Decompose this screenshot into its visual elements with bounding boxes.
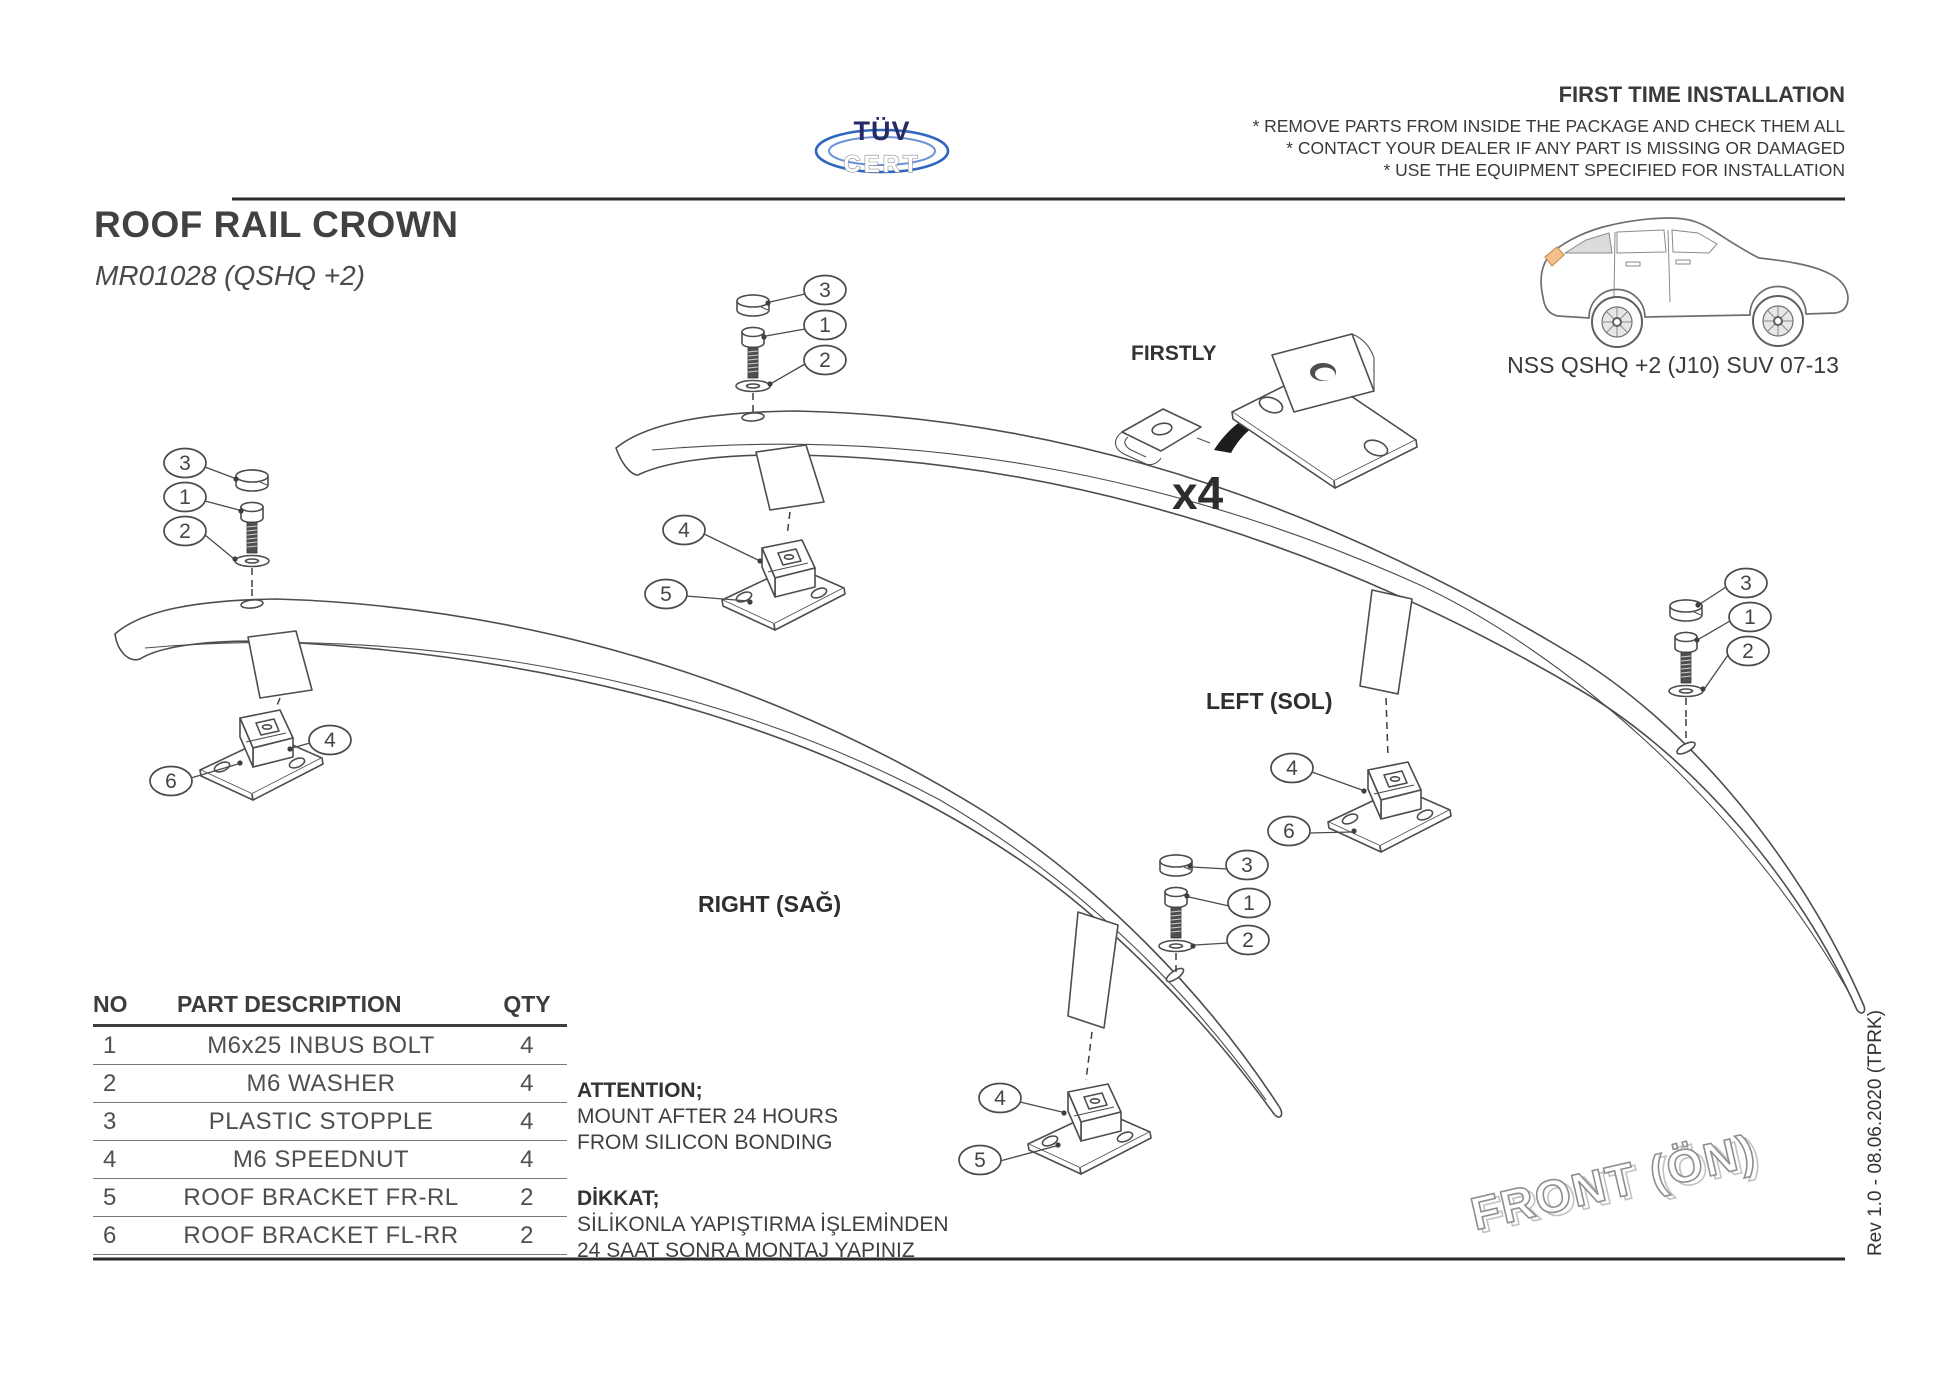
rail-left-rear-leg bbox=[1360, 590, 1412, 694]
attention-line: MOUNT AFTER 24 HOURS bbox=[577, 1104, 949, 1130]
callouts-left-rear-bracket: 4 6 bbox=[1268, 754, 1367, 846]
col-header-description: PART DESCRIPTION bbox=[155, 991, 487, 1018]
installation-sheet: 3 1 2 3 1 2 3 1 bbox=[0, 0, 1946, 1376]
svg-text:3: 3 bbox=[1241, 854, 1253, 877]
svg-text:1: 1 bbox=[1243, 892, 1255, 915]
firstly-speednut-illustration bbox=[1115, 409, 1210, 465]
page-title: ROOF RAIL CROWN bbox=[94, 204, 458, 246]
svg-text:2: 2 bbox=[179, 520, 191, 543]
table-row: 6 ROOF BRACKET FL-RR 2 bbox=[93, 1217, 567, 1255]
fasteners-right-front bbox=[235, 470, 269, 589]
attention-line: FROM SILICON BONDING bbox=[577, 1130, 949, 1156]
svg-text:2: 2 bbox=[1742, 640, 1754, 663]
callouts-right-front-fasteners: 3 1 2 bbox=[164, 449, 244, 562]
callouts-right-rear-fasteners: 3 1 2 bbox=[1184, 851, 1270, 955]
svg-text:2: 2 bbox=[819, 349, 831, 372]
parts-table-header: NO PART DESCRIPTION QTY bbox=[93, 991, 567, 1027]
firstly-bracket-illustration bbox=[1232, 334, 1417, 488]
dikkat-line: SİLİKONLA YAPIŞTIRMA İŞLEMİNDEN bbox=[577, 1212, 949, 1238]
svg-text:1: 1 bbox=[179, 486, 191, 509]
attention-title: ATTENTION; bbox=[577, 1078, 949, 1104]
callouts-left-front-fasteners: 3 1 2 bbox=[761, 276, 846, 387]
svg-text:4: 4 bbox=[324, 729, 336, 752]
svg-text:5: 5 bbox=[974, 1149, 986, 1172]
table-row: 5 ROOF BRACKET FR-RL 2 bbox=[93, 1179, 567, 1217]
instruction-bullet: * USE THE EQUIPMENT SPECIFIED FOR INSTAL… bbox=[1252, 159, 1845, 181]
rail-label-right: RIGHT (SAĞ) bbox=[698, 891, 841, 918]
svg-text:6: 6 bbox=[165, 770, 177, 793]
parts-table: NO PART DESCRIPTION QTY 1 M6x25 INBUS BO… bbox=[93, 991, 567, 1255]
notices-block: ATTENTION; MOUNT AFTER 24 HOURS FROM SIL… bbox=[577, 1078, 949, 1264]
firstly-quantity: x4 bbox=[1172, 466, 1223, 520]
table-row: 3 PLASTIC STOPPLE 4 bbox=[93, 1103, 567, 1141]
svg-text:4: 4 bbox=[678, 519, 690, 542]
dikkat-line: 24 SAAT SONRA MONTAJ YAPINIZ bbox=[577, 1238, 949, 1264]
bracket-left-rear bbox=[1328, 762, 1451, 852]
first-time-installation-block: FIRST TIME INSTALLATION * REMOVE PARTS F… bbox=[1252, 82, 1845, 181]
col-header-qty: QTY bbox=[487, 991, 567, 1018]
svg-text:5: 5 bbox=[660, 583, 672, 606]
svg-text:FRONT (ÖN): FRONT (ÖN) bbox=[1466, 1124, 1761, 1240]
first-time-installation-title: FIRST TIME INSTALLATION bbox=[1252, 82, 1845, 108]
table-row: 2 M6 WASHER 4 bbox=[93, 1065, 567, 1103]
fasteners-left-front bbox=[736, 295, 770, 414]
firstly-label: FIRSTLY bbox=[1131, 342, 1217, 366]
rail-label-left: LEFT (SOL) bbox=[1206, 688, 1332, 715]
svg-text:1: 1 bbox=[819, 314, 831, 337]
table-row: 1 M6x25 INBUS BOLT 4 bbox=[93, 1027, 567, 1065]
front-direction-label: FRONT (ÖN) FRONT (ÖN) bbox=[1466, 1123, 1766, 1244]
instruction-bullet: * CONTACT YOUR DEALER IF ANY PART IS MIS… bbox=[1252, 137, 1845, 159]
product-code: MR01028 (QSHQ +2) bbox=[95, 260, 365, 292]
svg-text:3: 3 bbox=[179, 452, 191, 475]
dikkat-title: DİKKAT; bbox=[577, 1186, 949, 1212]
bracket-right-rear bbox=[1028, 1084, 1151, 1174]
vehicle-caption: NSS QSHQ +2 (J10) SUV 07-13 bbox=[1507, 352, 1839, 379]
callouts-left-rear-fasteners: 3 1 2 bbox=[1694, 569, 1771, 692]
fasteners-left-rear bbox=[1669, 600, 1703, 719]
svg-text:4: 4 bbox=[1286, 757, 1298, 780]
col-header-no: NO bbox=[93, 991, 155, 1018]
bracket-right-front bbox=[200, 710, 323, 800]
logo-cert-text: CERT bbox=[843, 151, 920, 178]
rail-right-rear-leg bbox=[1068, 912, 1118, 1028]
tuv-cert-logo: CERT TÜV bbox=[816, 116, 948, 178]
svg-text:3: 3 bbox=[1740, 572, 1752, 595]
svg-text:4: 4 bbox=[994, 1087, 1006, 1110]
table-row: 4 M6 SPEEDNUT 4 bbox=[93, 1141, 567, 1179]
revision-text: Rev 1.0 - 08.06.2020 (TPRK) bbox=[1865, 1004, 1887, 1262]
instruction-bullet: * REMOVE PARTS FROM INSIDE THE PACKAGE A… bbox=[1252, 115, 1845, 137]
callouts-right-rear-bracket: 4 5 bbox=[959, 1084, 1067, 1175]
bracket-left-front bbox=[722, 540, 845, 630]
fasteners-right-rear bbox=[1159, 855, 1193, 974]
svg-text:2: 2 bbox=[1242, 929, 1254, 952]
vehicle-illustration bbox=[1541, 218, 1848, 347]
svg-text:1: 1 bbox=[1744, 606, 1756, 629]
svg-text:3: 3 bbox=[819, 279, 831, 302]
logo-tuv-text: TÜV bbox=[854, 116, 911, 146]
svg-text:6: 6 bbox=[1283, 820, 1295, 843]
